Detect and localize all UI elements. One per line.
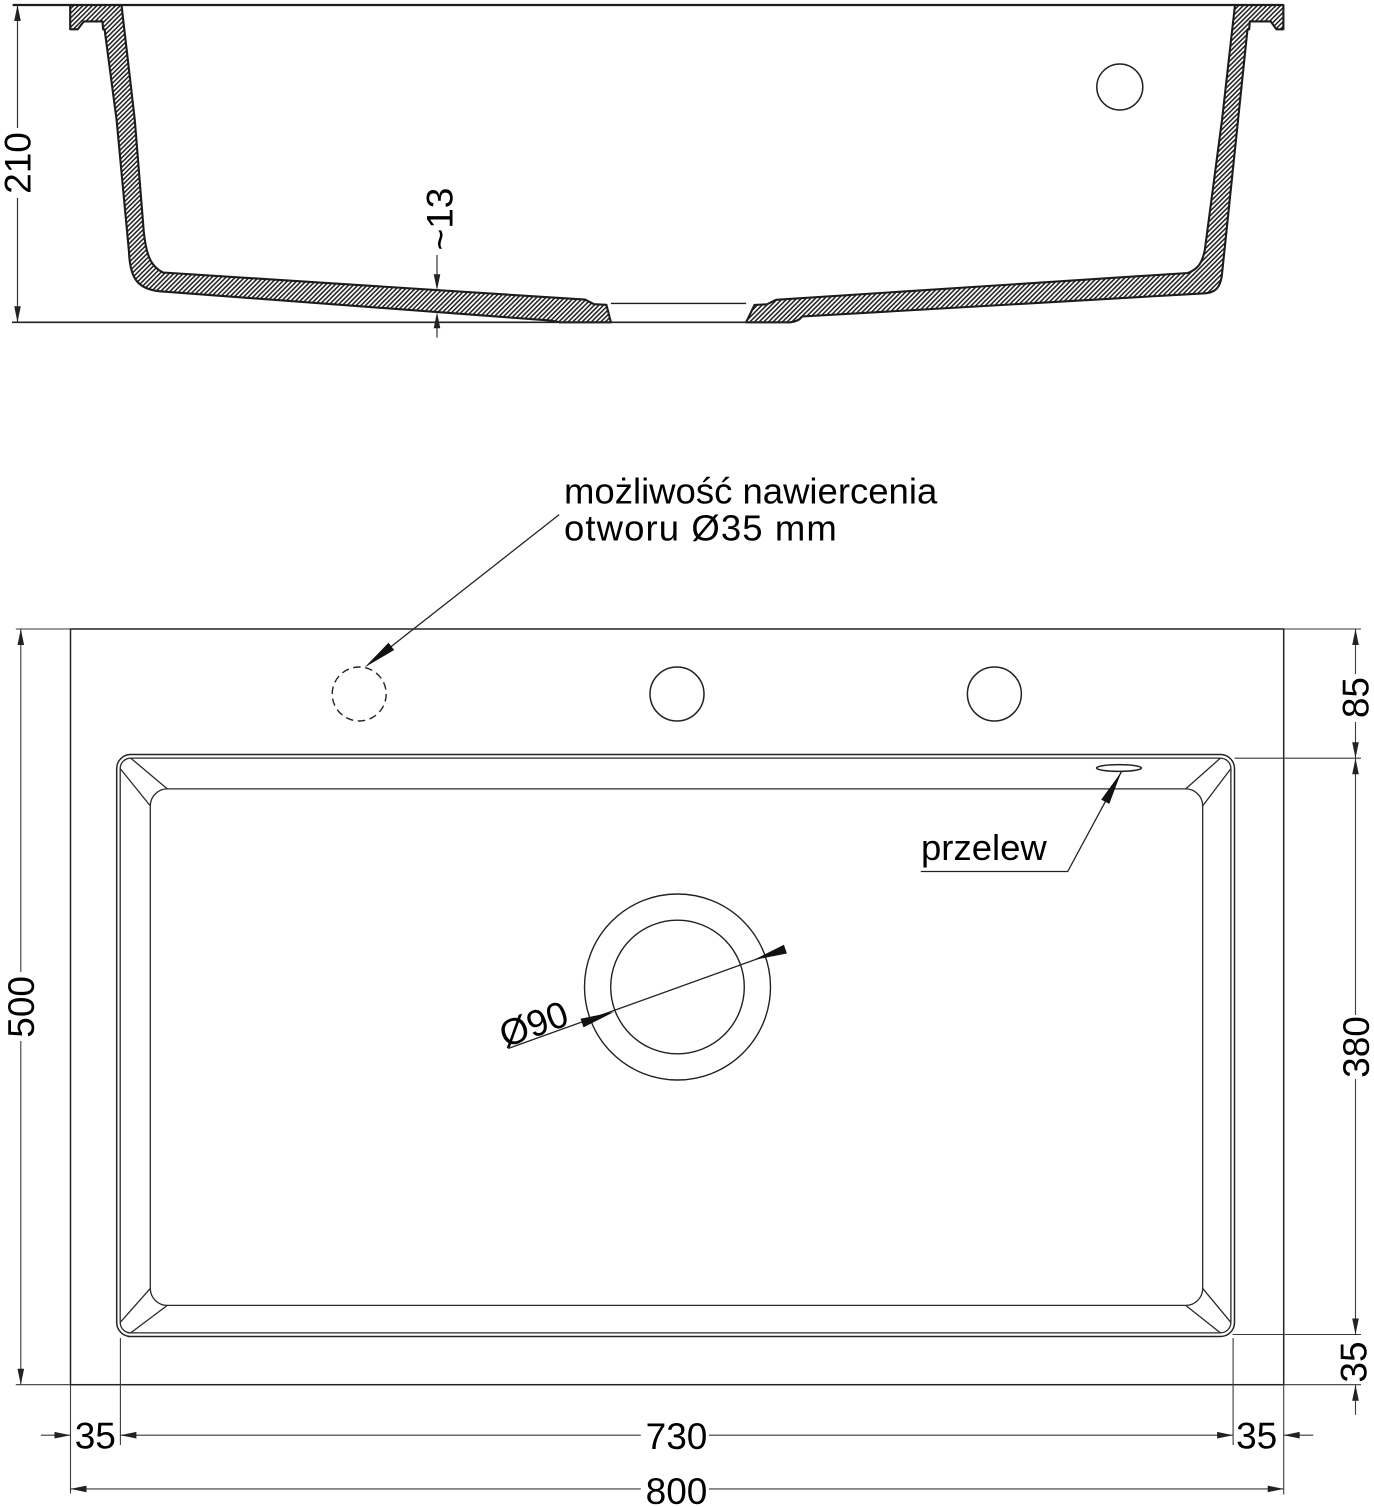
svg-text:730: 730: [646, 1416, 708, 1457]
svg-text:500: 500: [1, 976, 42, 1038]
svg-text:35: 35: [75, 1416, 116, 1457]
svg-text:~13: ~13: [420, 188, 461, 251]
svg-text:otworu Ø35 mm: otworu Ø35 mm: [564, 508, 838, 549]
svg-text:możliwość nawiercenia: możliwość nawiercenia: [564, 471, 938, 512]
svg-text:35: 35: [1334, 1341, 1374, 1382]
svg-text:800: 800: [646, 1471, 708, 1507]
svg-text:210: 210: [0, 132, 39, 194]
svg-text:380: 380: [1336, 1016, 1374, 1078]
svg-text:przelew: przelew: [921, 827, 1047, 868]
svg-text:35: 35: [1236, 1416, 1277, 1457]
svg-text:85: 85: [1336, 677, 1374, 718]
